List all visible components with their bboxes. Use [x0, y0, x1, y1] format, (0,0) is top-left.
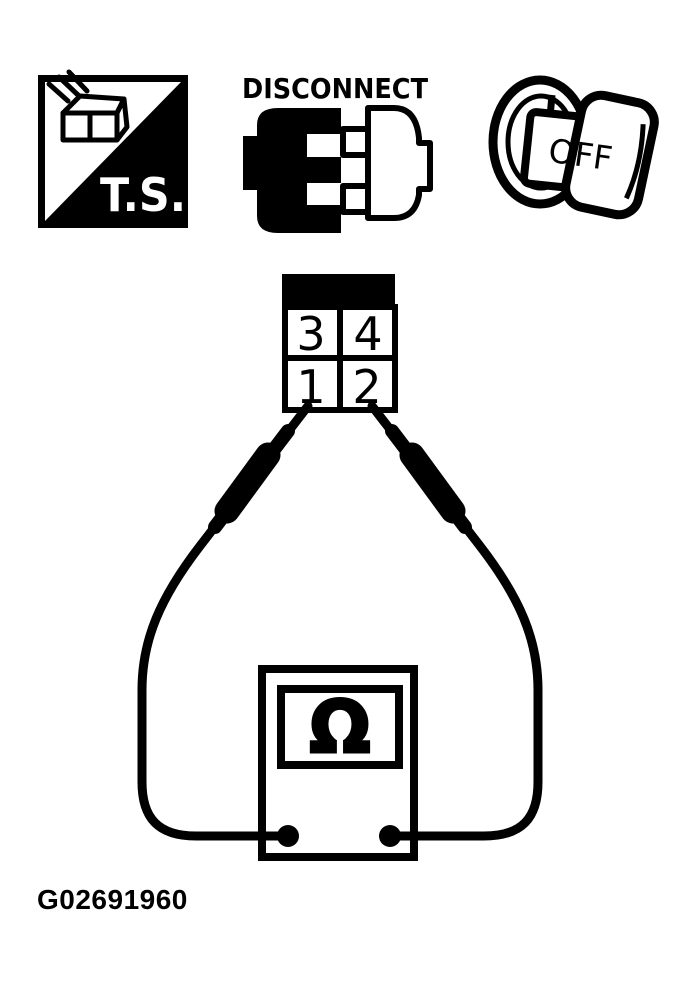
ohmmeter-terminal-left: [277, 825, 299, 847]
test-lead-right-handle: [412, 455, 453, 511]
test-lead-left-handle: [227, 455, 268, 511]
connector-lock-bar: [282, 274, 395, 304]
disconnect-connectors-icon: DISCONNECT: [242, 72, 430, 233]
service-manual-figure: T.S. DISCONNECT OFF: [0, 0, 679, 985]
connector-half-right-icon: [343, 108, 430, 218]
ignition-key-off-icon: OFF: [493, 80, 658, 218]
ts-label: T.S.: [100, 168, 186, 222]
pin-3-label: 3: [296, 307, 325, 361]
connector-pinout: 3 4 1 2: [282, 274, 395, 414]
test-switch-icon: T.S.: [38, 72, 188, 228]
pin-4-label: 4: [353, 307, 382, 361]
disconnect-label: DISCONNECT: [242, 72, 428, 105]
key-slot-mark: [550, 95, 552, 117]
connector-half-left-icon: [243, 108, 341, 233]
ohmmeter-terminal-right: [379, 825, 401, 847]
ohm-symbol: Ω: [309, 685, 370, 769]
figure-id: G02691960: [37, 884, 188, 915]
wiring-test-diagram: T.S. DISCONNECT OFF: [0, 0, 679, 985]
